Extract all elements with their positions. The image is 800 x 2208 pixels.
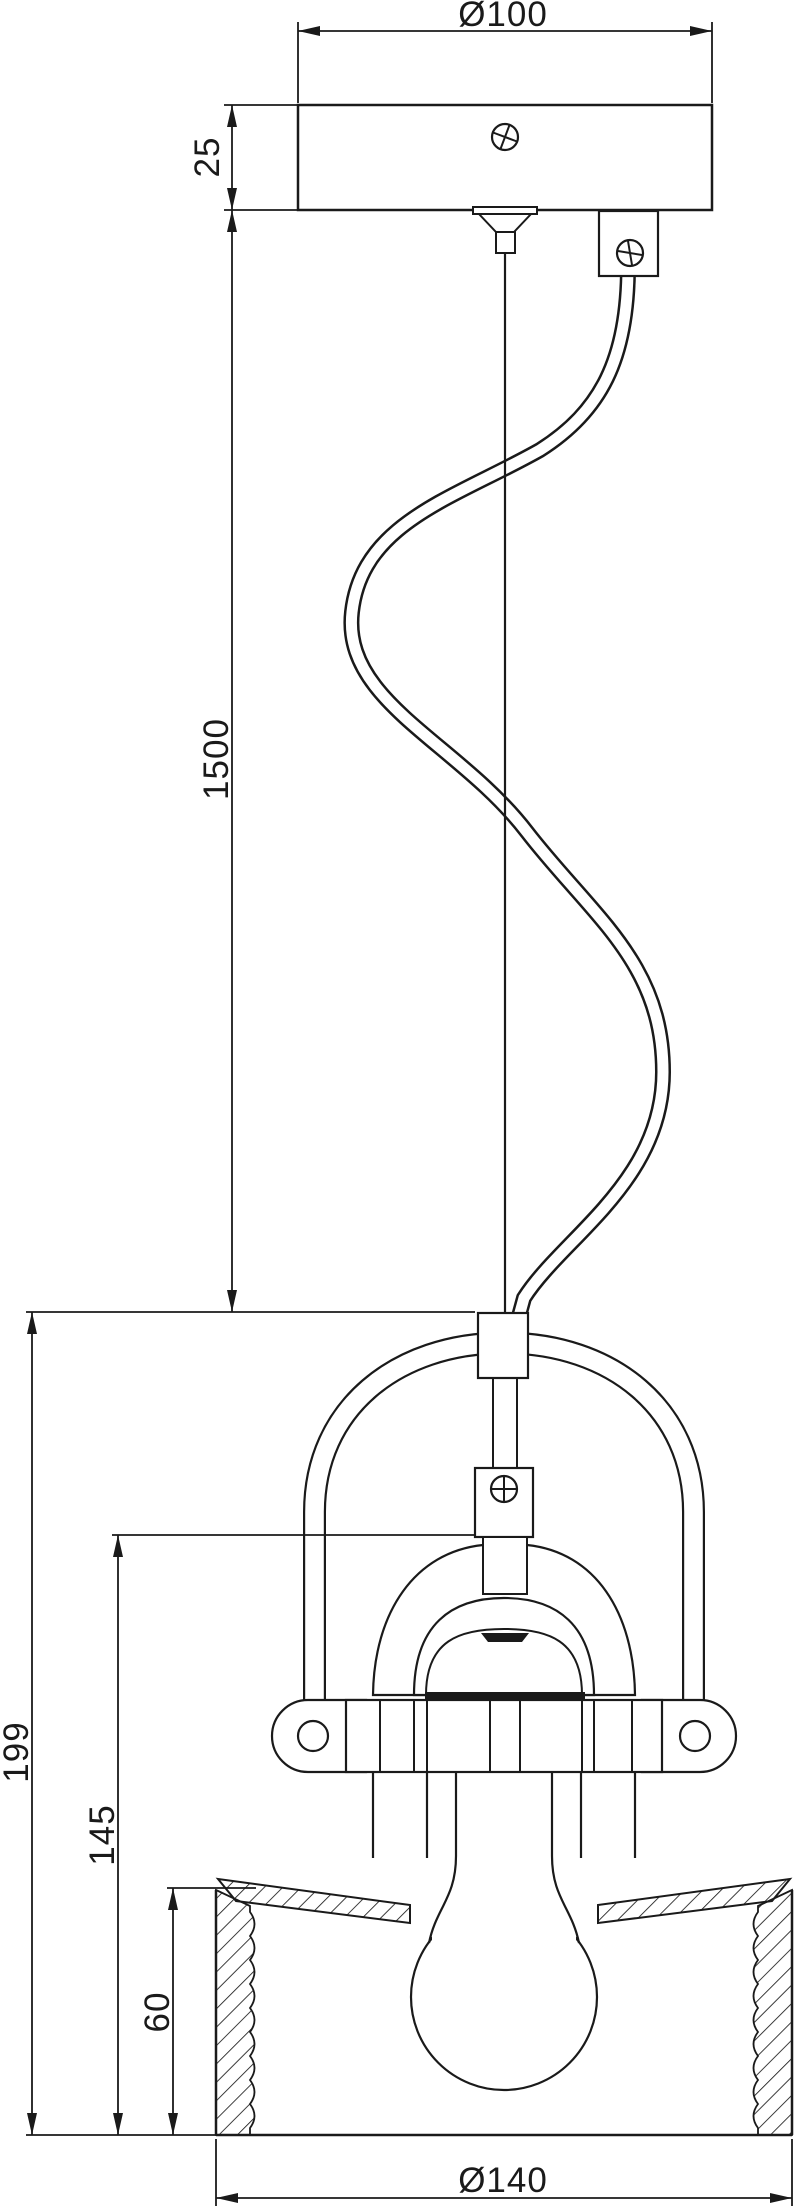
- dimension-arrow: [27, 2113, 37, 2135]
- cord-segment: [493, 1378, 517, 1470]
- dimension-arrow: [227, 1290, 237, 1312]
- dimension-arrow: [113, 1535, 123, 1557]
- shade-assembly-height-label: 145: [83, 1804, 122, 1865]
- power-cord: [351, 266, 663, 1320]
- screw-icon: [491, 1476, 517, 1502]
- shade-neck: [483, 1537, 527, 1594]
- hanger-bracket: [478, 1313, 528, 1378]
- dimension-arrow: [227, 210, 237, 232]
- dimension-arrow: [168, 2113, 178, 2135]
- dimension-cable-length: 1500: [197, 210, 237, 1312]
- technical-drawing: Ø100 25 1500 199 145 60: [0, 0, 800, 2208]
- lamp-socket: [481, 1633, 529, 1642]
- cable-length-label: 1500: [197, 718, 236, 800]
- band-height-label: 60: [138, 1992, 177, 2033]
- shade-diameter-label: Ø140: [458, 2161, 548, 2200]
- cord-holder: [599, 211, 658, 276]
- dimension-arrow: [227, 105, 237, 127]
- dimension-shade-diameter: Ø140: [216, 2139, 792, 2206]
- canopy-height-label: 25: [188, 137, 227, 178]
- canopy-body: [298, 105, 712, 210]
- screw-bracket: [475, 1468, 533, 1537]
- dimension-arrow: [227, 188, 237, 210]
- socket-plate: [425, 1692, 585, 1700]
- canopy-diameter-label: Ø100: [458, 0, 548, 34]
- dimension-arrow: [27, 1312, 37, 1334]
- dimension-arrow: [113, 2113, 123, 2135]
- band-section-left: [216, 1890, 255, 2135]
- dimension-canopy-diameter: Ø100: [298, 0, 712, 103]
- dimension-arrow: [216, 2193, 238, 2203]
- jar-mouth: [373, 1772, 635, 1858]
- clamp-band: [346, 1700, 662, 1772]
- fixture-height-label: 199: [0, 1721, 36, 1782]
- cord-grip: [473, 207, 537, 253]
- dimension-arrow: [770, 2193, 792, 2203]
- band-clamp: [272, 1700, 736, 1772]
- dimension-arrow: [690, 26, 712, 36]
- light-bulb: [411, 1772, 597, 2090]
- dimension-arrow: [168, 1888, 178, 1910]
- dimension-canopy-height: 25: [188, 105, 298, 210]
- band-section-right: [754, 1890, 793, 2135]
- ceiling-canopy: [298, 105, 712, 210]
- dimension-arrow: [298, 26, 320, 36]
